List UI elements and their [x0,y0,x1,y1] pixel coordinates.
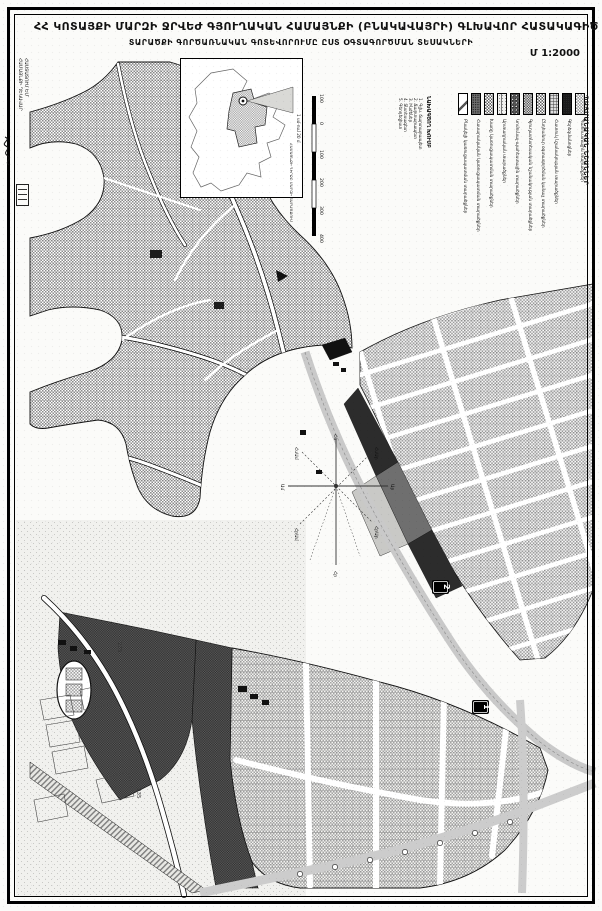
project-team-block: ՆԱԽԱԳԾՈՂ ԽՈՒՄԲ 1. Գլխ. ճարտարապետ 2. Ճար… [399,96,435,186]
legend-swatch-communal [510,93,520,115]
team-heading: ՆԱԽԱԳԾՈՂ ԽՈՒՄԲ [425,96,430,148]
team-member: 2. Ճարտարապետ [413,98,417,139]
legend: Բնակելի կառուցապատման տարածքներ Հասարակա… [458,93,586,115]
team-member: 5. Գեոդեզիստ [398,98,402,129]
signature-icon [0,136,13,166]
legend-item: Գերեզմանոցներ [562,93,573,115]
scale-label: Մ 1:2000 [530,48,580,59]
svg-text:100: 100 [318,94,324,103]
inset-caption: ՀԱՄԱՅՆՔԻ ԴԻՐՔԸ ՄԱՐԶԻ ՏԱՐԱԾՔՈՒՄ [289,143,293,222]
page-title: ՀՀ ԿՈՏԱՅՔԻ ՄԱՐԶԻ ՋՐՎԵԺ ԳՅՈՒՂԱԿԱՆ ՀԱՄԱՅՆՔ… [34,20,568,33]
legend-swatch-cemetery [562,93,572,115]
svg-text:400: 400 [318,234,324,243]
svg-text:300: 300 [318,206,324,215]
svg-text:100: 100 [318,150,324,159]
legend-item: Խառը կառուցապատման տարածքներ [484,93,495,115]
stamp-box [16,184,29,206]
legend-item: Հատուկ նշանակության տարածքներ [549,93,560,115]
legend-item: Գյուղատնտեսական նշանակության տարածքներ [523,93,534,115]
team-member: 3. Ինժեներ [408,98,412,122]
legend-swatch-special [549,93,559,115]
linear-scalebar: 100 0 100 200 300 400 1 սմ-ում 20 մ [296,88,336,288]
legend-swatch-agricultural [523,93,533,115]
map-sheet: Հս Ար Հր Ամ ՀսԱր ՀրԱր ՀրԱմ ՀսԱմ 235 235 … [0,0,602,911]
inset-location-map: ՀԱՄԱՅՆՔԻ ԴԻՐՔԸ ՄԱՐԶԻ ՏԱՐԱԾՔՈՒՄ [180,58,303,198]
svg-text:200: 200 [318,178,324,187]
legend-item: Ընդհանուր օգտագործման կանաչ տարածքներ [536,93,547,115]
scalebar-caption: 1 սմ-ում 20 մ [296,114,300,143]
legend-item: Արտադրական տարածքներ [497,93,508,115]
approval-line2: ՀԱՄԱՅՆՔԻ ՂԵԿԱՎԱՐ [16,58,21,111]
legend-swatch-green [536,93,546,115]
inset-canvas [181,59,300,195]
page-subtitle: ՏԱՐԱԾՔԻ ԳՈՐԾԱՌՆԱԿԱՆ ԳՈՏԵՎՈՐՈՒՄԸ ԸՍՏ ՕԳՏԱ… [60,38,542,47]
svg-text:0: 0 [318,122,324,125]
legend-item: Հասարակական կառուցապատման տարածքներ [471,93,482,115]
legend-swatch-mixed [484,93,494,115]
team-member: 4. Տնտեսագետ [403,98,407,132]
legend-swatch-residential [458,93,468,115]
approval-stamp: ՀԱՍՏԱՏՈՒՄ ԵՄ՝ ՀԱՄԱՅՆՔԻ ՂԵԿԱՎԱՐ [17,58,31,268]
legend-swatch-public [471,93,481,115]
legend-swatch-industrial [497,93,507,115]
legend-item: Կոմունալ-պահեստային տարածքներ [510,93,521,115]
scalebar-canvas: 100 0 100 200 300 400 [296,88,336,288]
team-member: 1. Գլխ. ճարտարապետ [418,98,422,149]
approval-line1: ՀԱՍՏԱՏՈՒՄ ԵՄ՝ [22,58,27,97]
legend-item: Բնակելի կառուցապատման տարածքներ [458,93,469,115]
scalebar-ticks: 100 0 100 200 300 400 [318,94,324,243]
legend-title: ՊԱՅՄԱՆԱԿԱՆ ՆՇԱՆՆԵՐ [582,95,588,185]
